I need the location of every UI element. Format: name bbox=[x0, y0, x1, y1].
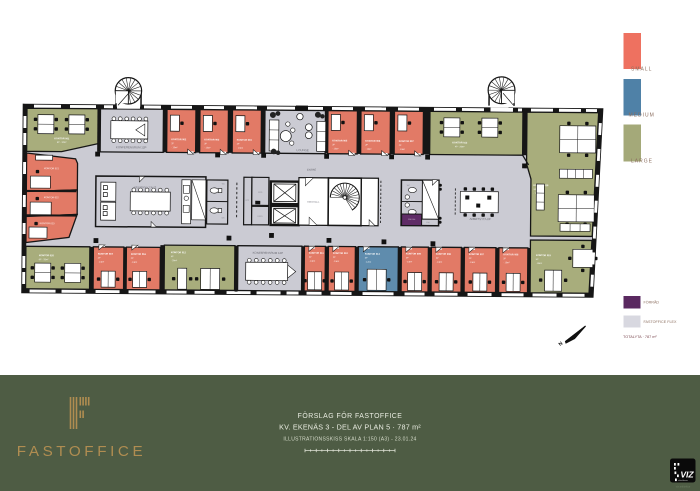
svg-text:WC: WC bbox=[407, 185, 411, 187]
svg-text:KONTOR 009: KONTOR 009 bbox=[406, 252, 422, 255]
svg-text:· 13m²: · 13m² bbox=[204, 146, 211, 149]
svg-text:· 13m²: · 13m² bbox=[399, 148, 406, 151]
svg-text:VIZ: VIZ bbox=[680, 470, 694, 480]
svg-text:KONTOR 006: KONTOR 006 bbox=[365, 140, 381, 143]
svg-text:KONTOR 015: KONTOR 015 bbox=[536, 254, 552, 257]
svg-text:KONTOR 019: KONTOR 019 bbox=[98, 253, 114, 256]
svg-text:PENTRY / TALS: PENTRY / TALS bbox=[134, 185, 156, 189]
svg-text:ILLUSTRATIONSSKISS SKALA 1:150: ILLUSTRATIONSSKISS SKALA 1:150 (A3) - 23… bbox=[283, 437, 416, 443]
svg-text:HISSHALL: HISSHALL bbox=[307, 200, 320, 204]
svg-text:KONTOR 001: KONTOR 001 bbox=[54, 137, 70, 140]
svg-text:KONTOR 008: KONTOR 008 bbox=[436, 253, 452, 256]
svg-text:6P · 32m²: 6P · 32m² bbox=[57, 141, 67, 144]
svg-text:KONTOR 023: KONTOR 023 bbox=[40, 222, 56, 225]
svg-text:KONTOR 005: KONTOR 005 bbox=[332, 139, 348, 142]
svg-text:KONTOR 004: KONTOR 004 bbox=[237, 139, 253, 142]
svg-text:KV. EKENÄS 3 - DEL AV PLAN 5 ·: KV. EKENÄS 3 - DEL AV PLAN 5 · 787 m² bbox=[279, 423, 421, 432]
svg-text:FRD 002: FRD 002 bbox=[408, 219, 415, 221]
svg-text:KONTOR 012: KONTOR 012 bbox=[171, 251, 187, 254]
svg-text:4P · 26m²: 4P · 26m² bbox=[455, 145, 465, 148]
svg-text:KONTOR 007: KONTOR 007 bbox=[399, 140, 415, 143]
svg-text:· 13m²: · 13m² bbox=[332, 147, 339, 150]
svg-text:ARBETSYTA 8P: ARBETSYTA 8P bbox=[470, 217, 491, 221]
svg-text:KONTOR 013: KONTOR 013 bbox=[452, 141, 468, 144]
svg-text:· 13m²: · 13m² bbox=[436, 261, 443, 264]
svg-text:· 17m²: · 17m² bbox=[365, 261, 372, 264]
svg-text:· 13m²: · 13m² bbox=[333, 260, 340, 263]
svg-text:KONTOR 010: KONTOR 010 bbox=[333, 252, 349, 255]
svg-text:KONTOR 006: KONTOR 006 bbox=[503, 253, 519, 256]
svg-text:KONFERENSRUM 12P: KONFERENSRUM 12P bbox=[253, 251, 284, 255]
svg-text:LARGE: LARGE bbox=[631, 159, 653, 165]
svg-text:FRD: FRD bbox=[258, 192, 263, 194]
svg-text:KONTOR 020: KONTOR 020 bbox=[39, 254, 55, 257]
svg-text:FÖRRÅD: FÖRRÅD bbox=[644, 300, 660, 305]
svg-text:KONTOR 021: KONTOR 021 bbox=[44, 167, 60, 170]
svg-text:· 13m²: · 13m² bbox=[365, 148, 372, 151]
svg-text:· 13m²: · 13m² bbox=[237, 147, 244, 150]
svg-text:KONFERENSRUM 12P: KONFERENSRUM 12P bbox=[116, 145, 147, 149]
svg-text:KONTOR 014: KONTOR 014 bbox=[365, 253, 381, 256]
svg-text:KONTOR 011: KONTOR 011 bbox=[309, 252, 325, 255]
svg-text:DATA: DATA bbox=[258, 215, 264, 218]
svg-text:· 26m²: · 26m² bbox=[171, 259, 178, 262]
svg-text:· 13m²: · 13m² bbox=[503, 261, 510, 264]
svg-text:KONTOR 003: KONTOR 003 bbox=[204, 138, 220, 141]
svg-text:FÖRSLAG FÖR FASTOFFICE: FÖRSLAG FÖR FASTOFFICE bbox=[298, 412, 403, 420]
svg-text:KONTOR 002: KONTOR 002 bbox=[171, 138, 187, 141]
svg-text:KONTOR 022: KONTOR 022 bbox=[44, 196, 60, 199]
svg-text:MEDIUM: MEDIUM bbox=[629, 113, 655, 119]
svg-text:KONTOR 018: KONTOR 018 bbox=[131, 253, 147, 256]
svg-text:FASTOFFICE FLEX: FASTOFFICE FLEX bbox=[644, 320, 677, 324]
svg-text:viz arkitektur: viz arkitektur bbox=[676, 485, 691, 489]
svg-text:· 13m²: · 13m² bbox=[469, 261, 476, 264]
svg-text:FASTOFFICE: FASTOFFICE bbox=[17, 443, 146, 460]
svg-text:· 13m²: · 13m² bbox=[171, 146, 178, 149]
svg-text:WC: WC bbox=[221, 218, 225, 220]
svg-text:TOTALYTA · 787 m²: TOTALYTA · 787 m² bbox=[623, 335, 657, 339]
svg-text:WC: WC bbox=[222, 184, 226, 186]
svg-text:SMALL: SMALL bbox=[631, 67, 652, 73]
svg-text:6P · 32m²: 6P · 32m² bbox=[39, 258, 49, 261]
svg-text:· 13m²: · 13m² bbox=[131, 261, 138, 264]
svg-text:· 13m²: · 13m² bbox=[406, 260, 413, 263]
svg-text:· 30m²: · 30m² bbox=[536, 262, 543, 265]
svg-text:KONTOR 007: KONTOR 007 bbox=[469, 253, 485, 256]
svg-text:· 13m²: · 13m² bbox=[98, 261, 105, 264]
svg-text:LOUNGE: LOUNGE bbox=[297, 148, 309, 152]
svg-text:· 13m²: · 13m² bbox=[309, 260, 316, 263]
